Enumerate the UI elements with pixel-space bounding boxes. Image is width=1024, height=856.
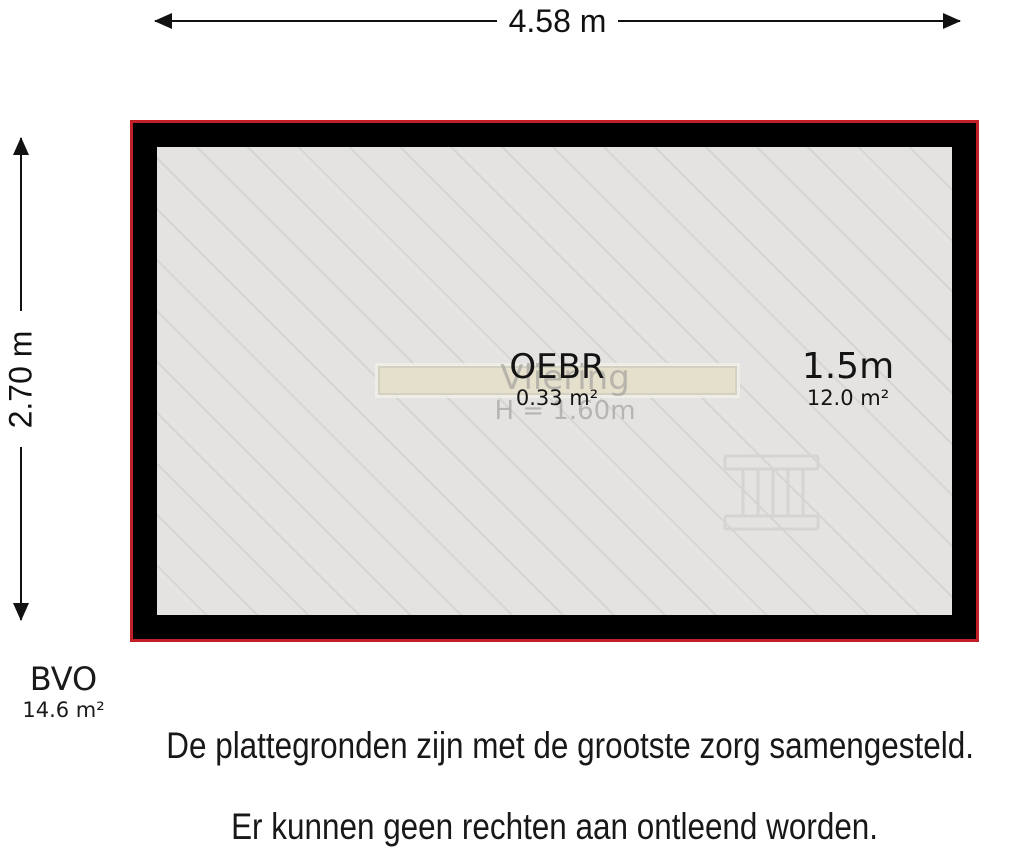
floor-plan-walls: Vliering H = 1.60m OEBR 0.33 m² 1.5m 12.… <box>130 120 979 642</box>
area-label-height-zone: 1.5m 12.0 m² <box>802 349 894 411</box>
floor-plan-room: Vliering H = 1.60m OEBR 0.33 m² 1.5m 12.… <box>157 147 952 615</box>
left-dimension: 2.70 m <box>6 138 36 620</box>
left-dimension-label: 2.70 m <box>3 330 40 428</box>
bvo-title: BVO <box>16 660 111 698</box>
top-dimension-label: 4.58 m <box>509 3 607 40</box>
disclaimer-line-1: De plattegronden zijn met de grootste zo… <box>166 725 974 767</box>
dimension-arrow-bottom-segment <box>20 447 22 620</box>
area-label-height-zone-area: 12.0 m² <box>802 385 894 411</box>
area-label-oebr-title: OEBR <box>509 349 604 385</box>
floorplan-page: 4.58 m 2.70 m Vliering H = 1.60m <box>0 0 1024 856</box>
ladder-icon <box>723 450 820 535</box>
dimension-arrow-right-segment <box>618 20 960 22</box>
disclaimer-line-2-wrap: Er kunnen geen rechten aan ontleend word… <box>95 806 1014 848</box>
disclaimer-line-2: Er kunnen geen rechten aan ontleend word… <box>231 806 878 848</box>
area-label-oebr: OEBR 0.33 m² <box>509 349 604 411</box>
top-dimension: 4.58 m <box>155 6 960 36</box>
dimension-arrow-left-segment <box>155 20 497 22</box>
dimension-arrow-top-segment <box>20 138 22 311</box>
area-label-oebr-area: 0.33 m² <box>509 385 604 411</box>
bvo-label: BVO 14.6 m² <box>16 660 111 722</box>
bvo-area: 14.6 m² <box>16 698 111 722</box>
left-dimension-label-wrap: 2.70 m <box>0 323 70 435</box>
area-label-height-zone-title: 1.5m <box>802 349 894 385</box>
disclaimer-line-1-wrap: De plattegronden zijn met de grootste zo… <box>95 725 1014 767</box>
